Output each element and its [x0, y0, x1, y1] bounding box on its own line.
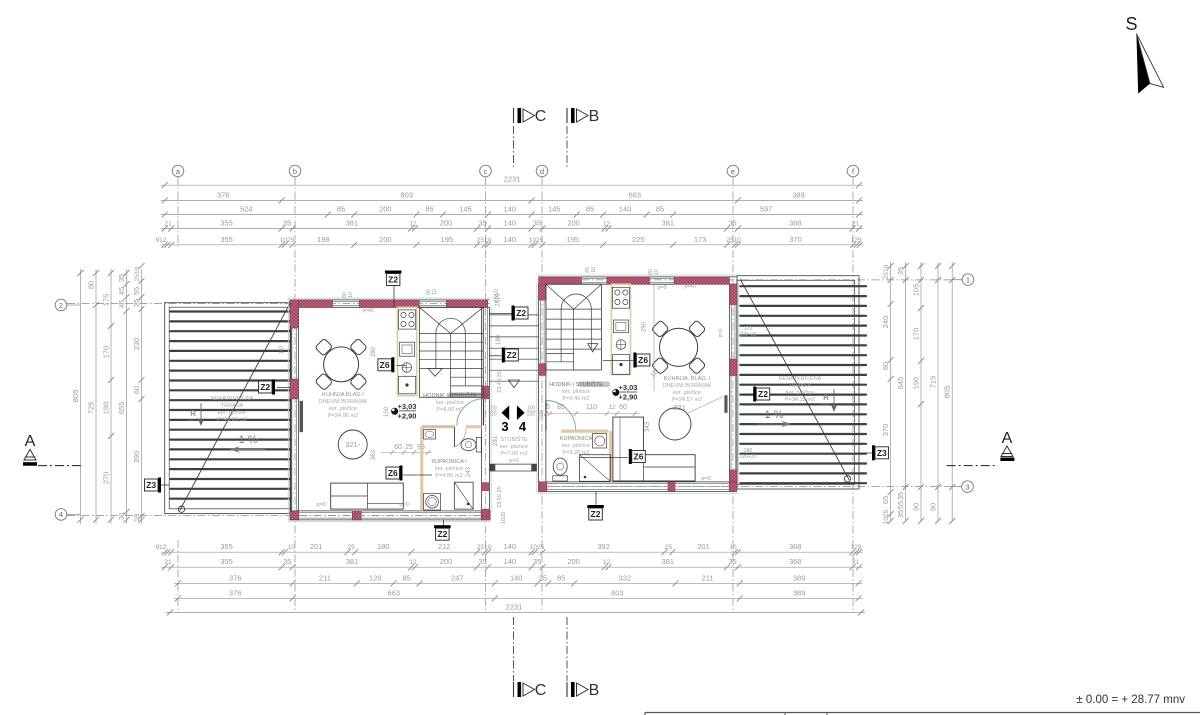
svg-text:212: 212 [438, 542, 451, 551]
svg-text:10: 10 [432, 289, 438, 295]
svg-text:55: 55 [132, 287, 141, 295]
svg-text:35: 35 [539, 573, 547, 582]
svg-text:35: 35 [728, 557, 736, 566]
svg-text:Z2: Z2 [388, 275, 398, 285]
svg-text:ker. pločice: ker. pločice [329, 406, 357, 412]
svg-text:1025: 1025 [530, 544, 545, 551]
svg-text:+3,03: +3,03 [619, 383, 638, 392]
svg-text:2231: 2231 [504, 175, 521, 184]
svg-text:DNEVNI BORAVAK: DNEVNI BORAVAK [663, 383, 712, 389]
svg-text:35: 35 [728, 219, 736, 228]
svg-text:35: 35 [283, 557, 291, 566]
svg-text:65: 65 [881, 496, 890, 504]
svg-text:A: A [1002, 430, 1013, 447]
svg-text:p=0: p=0 [316, 502, 325, 508]
svg-text:1025: 1025 [501, 512, 507, 524]
svg-text:STUBIŠTE: STUBIŠTE [500, 436, 528, 443]
svg-text:± 0.00 = + 28.77 mnv: ± 0.00 = + 28.77 mnv [1076, 694, 1185, 706]
svg-text:1 %: 1 % [765, 409, 784, 421]
svg-text:173: 173 [694, 235, 707, 244]
svg-text:140: 140 [504, 219, 517, 228]
svg-text:803: 803 [611, 588, 624, 597]
svg-text:2510: 2510 [134, 266, 141, 281]
svg-text:321-: 321- [345, 440, 361, 449]
svg-text:725: 725 [87, 402, 96, 415]
svg-text:90: 90 [929, 503, 938, 511]
svg-text:e: e [731, 167, 735, 176]
svg-text:B: B [589, 682, 600, 699]
svg-text:Z2: Z2 [507, 350, 517, 360]
svg-text:10: 10 [348, 292, 354, 298]
svg-text:10: 10 [288, 544, 296, 551]
svg-text:368: 368 [789, 219, 802, 228]
svg-text:381: 381 [662, 219, 675, 228]
svg-text:195: 195 [567, 235, 580, 244]
svg-text:912: 912 [156, 544, 167, 551]
svg-text:120: 120 [369, 573, 382, 582]
svg-text:190: 190 [912, 377, 921, 390]
svg-text:1: 1 [966, 275, 970, 284]
svg-text:Z3: Z3 [877, 448, 887, 458]
svg-text:160: 160 [279, 346, 285, 355]
svg-text:TERASA: TERASA [221, 403, 244, 409]
svg-text:80: 80 [87, 281, 96, 289]
svg-text:+3,03: +3,03 [398, 402, 417, 411]
svg-text:370: 370 [789, 235, 802, 244]
svg-text:3: 3 [965, 482, 969, 491]
svg-text:ker. pločice: ker. pločice [562, 389, 590, 395]
svg-text:85: 85 [586, 205, 594, 214]
svg-text:TERASA: TERASA [789, 383, 812, 389]
svg-text:P=8.00 m2: P=8.00 m2 [436, 407, 463, 413]
svg-text:663: 663 [388, 588, 401, 597]
svg-text:389: 389 [793, 588, 806, 597]
svg-text:ker. pločice: ker. pločice [786, 390, 814, 396]
svg-text:+2,90: +2,90 [398, 412, 417, 421]
svg-text:P=3.26 m2: P=3.26 m2 [562, 450, 589, 456]
svg-text:c: c [484, 167, 488, 176]
svg-text:12: 12 [409, 559, 417, 566]
svg-text:10: 10 [654, 269, 660, 275]
svg-text:Z6: Z6 [638, 355, 648, 365]
svg-text:31: 31 [117, 512, 126, 520]
svg-text:Z3: Z3 [146, 480, 156, 490]
svg-text:Z2: Z2 [516, 308, 526, 318]
svg-text:ker. pločice: ker. pločice [218, 410, 246, 416]
svg-text:Z6: Z6 [380, 360, 390, 370]
svg-text:2510: 2510 [494, 289, 500, 303]
svg-text:85: 85 [337, 205, 345, 214]
svg-text:55: 55 [896, 501, 905, 509]
svg-text:C: C [535, 682, 547, 699]
svg-text:201: 201 [697, 542, 710, 551]
svg-text:60: 60 [132, 386, 141, 394]
svg-text:140: 140 [510, 573, 523, 582]
svg-text:225: 225 [632, 235, 645, 244]
svg-text:85: 85 [402, 573, 410, 582]
svg-text:715: 715 [929, 376, 938, 389]
svg-text:655: 655 [117, 402, 126, 415]
svg-text:A: A [25, 433, 36, 450]
svg-text:2510: 2510 [883, 264, 890, 279]
svg-text:389: 389 [793, 573, 806, 582]
svg-text:247: 247 [451, 573, 464, 582]
svg-text:DNEVNI BORAVAK: DNEVNI BORAVAK [319, 399, 368, 405]
svg-text:p=0: p=0 [509, 458, 519, 464]
svg-text:Z2: Z2 [260, 382, 270, 392]
svg-text:60: 60 [881, 362, 890, 370]
svg-text:P=9.40 m2: P=9.40 m2 [562, 396, 589, 402]
svg-text:355: 355 [220, 219, 233, 228]
svg-text:145: 145 [548, 205, 561, 214]
svg-text:368: 368 [789, 542, 802, 551]
svg-text:p=0: p=0 [399, 502, 408, 508]
svg-text:200: 200 [379, 235, 392, 244]
svg-text:805: 805 [943, 386, 952, 399]
svg-text:4: 4 [59, 510, 63, 519]
svg-text:ker. pločice: ker. pločice [673, 390, 701, 396]
svg-text:60: 60 [619, 404, 627, 411]
svg-text:140: 140 [504, 205, 517, 214]
svg-text:85: 85 [557, 573, 565, 582]
svg-text:5: 5 [546, 404, 550, 411]
svg-text:2510: 2510 [726, 237, 741, 244]
svg-text:2: 2 [59, 301, 63, 310]
svg-text:389: 389 [792, 190, 805, 199]
svg-text:b: b [293, 167, 297, 176]
svg-text:2510: 2510 [477, 237, 492, 244]
svg-text:25: 25 [405, 444, 413, 451]
svg-text:200: 200 [440, 219, 453, 228]
svg-text:355: 355 [220, 235, 233, 244]
svg-text:P=7.06 m2: P=7.06 m2 [500, 451, 527, 457]
svg-text:ker. pločice: ker. pločice [436, 400, 464, 406]
svg-text:1 %: 1 % [239, 434, 258, 446]
svg-text:321: 321 [673, 403, 686, 412]
svg-text:4: 4 [519, 419, 527, 434]
svg-text:1025: 1025 [280, 237, 295, 244]
svg-text:85: 85 [656, 205, 664, 214]
svg-text:140: 140 [619, 205, 632, 214]
svg-text:12: 12 [409, 221, 417, 228]
svg-text:243: 243 [466, 466, 472, 477]
svg-text:376: 376 [229, 588, 242, 597]
svg-text:186: 186 [496, 334, 502, 345]
svg-text:45: 45 [117, 300, 126, 308]
svg-text:KUPAONICA: KUPAONICA [560, 436, 593, 442]
svg-text:198: 198 [317, 235, 330, 244]
svg-text:803: 803 [400, 190, 413, 199]
svg-text:140: 140 [504, 235, 517, 244]
svg-text:370: 370 [881, 424, 890, 437]
svg-text:110: 110 [586, 404, 597, 411]
svg-text:P=4.86 m2: P=4.86 m2 [435, 473, 462, 479]
svg-text:NENATKRIVENA: NENATKRIVENA [778, 376, 821, 382]
svg-text:190: 190 [102, 402, 111, 415]
svg-text:85: 85 [426, 205, 434, 214]
svg-text:P=24.96 m2: P=24.96 m2 [328, 413, 358, 419]
svg-text:332: 332 [619, 573, 632, 582]
svg-text:368: 368 [789, 557, 802, 566]
svg-text:12: 12 [603, 559, 611, 566]
svg-text:170: 170 [102, 346, 111, 359]
svg-text:381: 381 [346, 557, 359, 566]
svg-text:d: d [540, 167, 544, 176]
svg-text:P=43.83 m2: P=43.83 m2 [217, 417, 247, 423]
svg-text:290: 290 [642, 321, 648, 332]
svg-text:645: 645 [896, 377, 905, 390]
svg-text:NENATKRIVENA: NENATKRIVENA [210, 396, 253, 402]
svg-text:23,49,25: 23,49,25 [497, 371, 503, 392]
svg-text:85: 85 [557, 404, 565, 411]
svg-text:3: 3 [501, 419, 508, 434]
svg-text:+2,90: +2,90 [619, 393, 638, 402]
svg-text:90: 90 [912, 503, 921, 511]
svg-text:35: 35 [533, 219, 541, 228]
svg-text:Z2: Z2 [437, 529, 447, 539]
svg-text:Z2: Z2 [758, 389, 768, 399]
svg-text:170: 170 [912, 328, 921, 341]
svg-text:B: B [589, 108, 600, 125]
svg-text:P=34.32 m2: P=34.32 m2 [785, 397, 815, 403]
svg-text:100: 100 [384, 406, 390, 417]
svg-text:200: 200 [379, 205, 392, 214]
svg-text:ker. pločice: ker. pločice [435, 466, 463, 472]
svg-text:p=40: p=40 [362, 308, 373, 314]
svg-text:129: 129 [851, 237, 862, 244]
svg-text:p=0: p=0 [701, 476, 710, 482]
svg-text:KUHNJA BLAG I: KUHNJA BLAG I [322, 392, 364, 398]
svg-text:25 65 25: 25 65 25 [497, 486, 503, 507]
svg-text:220+20: 220+20 [740, 454, 757, 460]
svg-text:S: S [1125, 14, 1137, 34]
svg-text:230: 230 [132, 338, 141, 351]
svg-text:201: 201 [310, 542, 323, 551]
svg-text:195: 195 [441, 235, 454, 244]
svg-text:200: 200 [567, 219, 580, 228]
svg-text:21: 21 [164, 221, 172, 228]
svg-text:343: 343 [645, 421, 651, 432]
svg-text:524: 524 [240, 205, 253, 214]
svg-text:45: 45 [117, 287, 126, 295]
svg-text:597: 597 [760, 205, 773, 214]
svg-text:ker. pločice: ker. pločice [500, 444, 528, 450]
svg-text:25: 25 [665, 544, 673, 551]
svg-text:2231: 2231 [506, 602, 523, 611]
svg-text:25: 25 [132, 299, 141, 307]
svg-text:p=40: p=40 [684, 284, 695, 290]
svg-text:129: 129 [851, 544, 862, 551]
svg-text:211: 211 [319, 573, 331, 582]
svg-text:25: 25 [348, 544, 356, 551]
svg-text:280: 280 [371, 346, 377, 357]
svg-text:21: 21 [164, 559, 172, 566]
svg-text:100: 100 [539, 409, 545, 420]
svg-text:270: 270 [102, 472, 111, 485]
svg-text:ker. pločice: ker. pločice [562, 443, 590, 449]
svg-text:C: C [535, 108, 547, 125]
svg-text:211: 211 [702, 573, 714, 582]
svg-text:200: 200 [440, 557, 453, 566]
svg-text:2510: 2510 [477, 544, 492, 551]
svg-text:1025: 1025 [529, 237, 544, 244]
svg-text:220: 220 [488, 412, 497, 418]
svg-text:60: 60 [394, 444, 402, 451]
svg-text:805: 805 [71, 390, 80, 403]
svg-text:R: R [823, 393, 829, 402]
svg-text:100+20: 100+20 [740, 332, 757, 338]
svg-text:240: 240 [881, 316, 890, 329]
svg-text:R: R [190, 409, 196, 418]
svg-text:140: 140 [504, 557, 517, 566]
svg-text:p=0: p=0 [657, 285, 666, 291]
svg-text:35: 35 [283, 219, 291, 228]
svg-text:145: 145 [459, 205, 472, 214]
svg-text:390: 390 [132, 451, 141, 464]
svg-text:10: 10 [591, 267, 597, 273]
svg-text:663: 663 [629, 190, 642, 199]
svg-text:175: 175 [102, 294, 111, 307]
svg-text:35: 35 [896, 510, 905, 518]
svg-text:35: 35 [896, 492, 905, 500]
svg-text:KUPAONICA I: KUPAONICA I [431, 459, 467, 465]
svg-text:220: 220 [527, 412, 536, 418]
svg-text:355: 355 [220, 557, 233, 566]
svg-text:912: 912 [156, 237, 167, 244]
svg-text:Z6: Z6 [388, 468, 398, 478]
svg-text:281: 281 [493, 435, 499, 446]
svg-text:355: 355 [220, 542, 233, 551]
svg-text:105: 105 [912, 284, 921, 297]
svg-text:Z6: Z6 [634, 452, 644, 462]
svg-text:376: 376 [217, 190, 230, 199]
svg-text:12: 12 [603, 221, 611, 228]
svg-text:35: 35 [533, 557, 541, 566]
svg-text:Z2: Z2 [591, 509, 601, 519]
svg-text:376: 376 [229, 573, 242, 582]
svg-text:KUHINJA, BLAG. I: KUHINJA, BLAG. I [664, 376, 711, 382]
svg-text:180: 180 [377, 542, 390, 551]
svg-text:381: 381 [346, 219, 359, 228]
svg-text:p=0: p=0 [718, 329, 724, 338]
svg-text:12: 12 [608, 404, 616, 411]
svg-text:200: 200 [567, 557, 580, 566]
svg-text:363: 363 [371, 449, 377, 460]
svg-text:392: 392 [597, 542, 610, 551]
svg-text:140: 140 [504, 542, 517, 551]
svg-text:381: 381 [662, 557, 675, 566]
